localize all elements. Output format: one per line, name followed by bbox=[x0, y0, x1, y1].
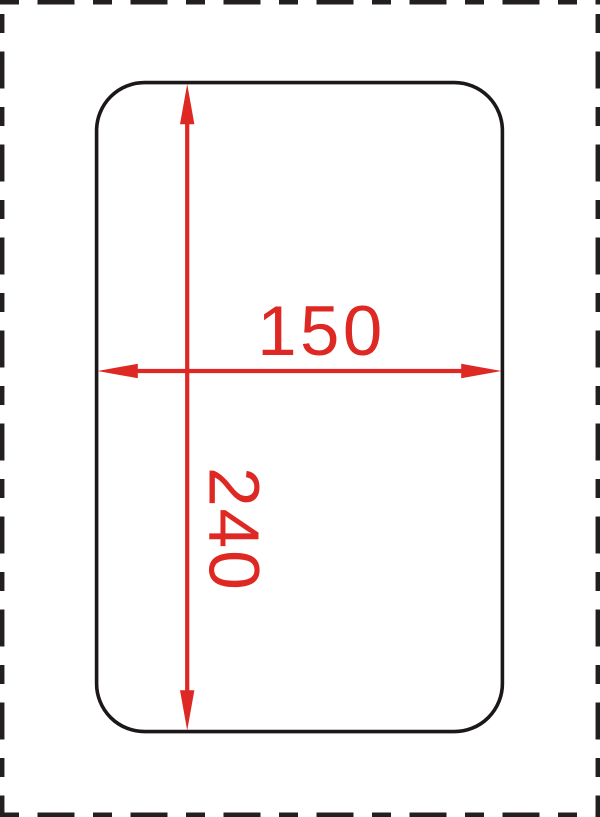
svg-text:240: 240 bbox=[194, 467, 274, 592]
svg-text:150: 150 bbox=[257, 292, 386, 371]
